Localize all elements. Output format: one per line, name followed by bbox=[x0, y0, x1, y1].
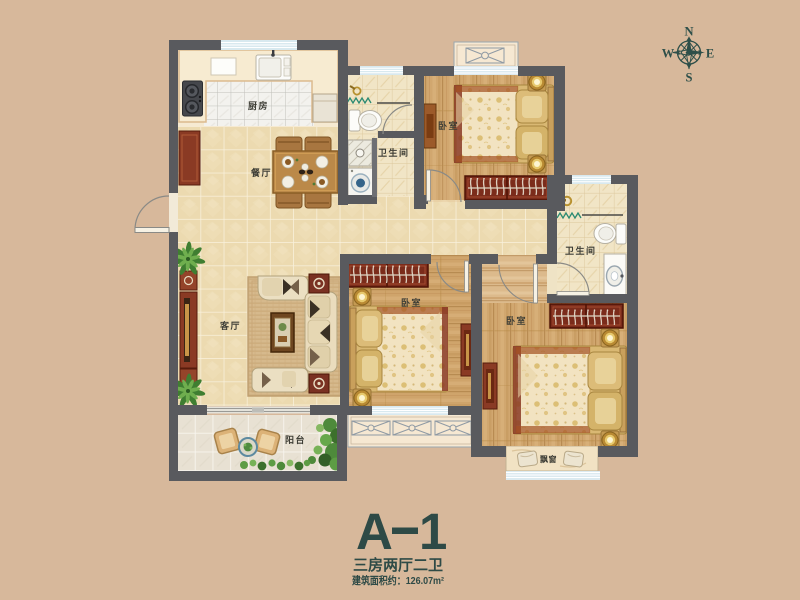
svg-text:S: S bbox=[686, 71, 693, 85]
svg-text:厨房: 厨房 bbox=[248, 100, 269, 111]
svg-text:餐厅: 餐厅 bbox=[250, 167, 272, 178]
svg-text:卫生间: 卫生间 bbox=[565, 245, 597, 256]
svg-text:飘窗: 飘窗 bbox=[540, 454, 557, 464]
svg-text:客厅: 客厅 bbox=[219, 320, 241, 331]
svg-text:卫生间: 卫生间 bbox=[378, 147, 410, 158]
svg-text:卧室: 卧室 bbox=[506, 315, 527, 326]
svg-text:W: W bbox=[662, 47, 675, 61]
svg-text:卧室: 卧室 bbox=[401, 297, 422, 308]
svg-text:1: 1 bbox=[419, 503, 447, 560]
svg-text:三房两厅二卫: 三房两厅二卫 bbox=[353, 556, 443, 574]
svg-text:建筑面积约：126.07m²: 建筑面积约：126.07m² bbox=[351, 574, 444, 587]
svg-text:阳台: 阳台 bbox=[285, 434, 306, 445]
svg-text:N: N bbox=[684, 25, 693, 39]
svg-text:E: E bbox=[706, 47, 714, 61]
svg-text:卧室: 卧室 bbox=[438, 120, 459, 131]
svg-text:A: A bbox=[356, 503, 393, 560]
